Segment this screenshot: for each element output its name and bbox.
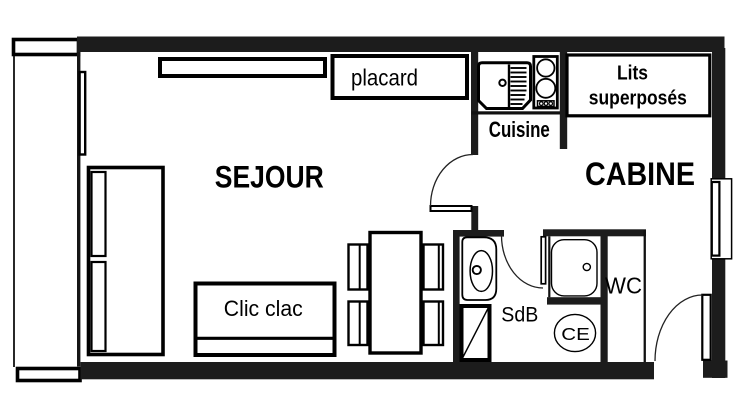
svg-text:Clic clac: Clic clac <box>224 296 303 321</box>
svg-text:Lits: Lits <box>617 62 648 85</box>
svg-text:CABINE: CABINE <box>585 156 695 192</box>
svg-text:WC: WC <box>605 273 642 299</box>
svg-text:SdB: SdB <box>501 303 538 327</box>
svg-text:Cuisine: Cuisine <box>489 117 550 142</box>
svg-text:CE: CE <box>561 324 590 344</box>
svg-text:superposés: superposés <box>589 87 687 110</box>
svg-text:placard: placard <box>351 65 418 91</box>
svg-text:SEJOUR: SEJOUR <box>215 159 324 195</box>
